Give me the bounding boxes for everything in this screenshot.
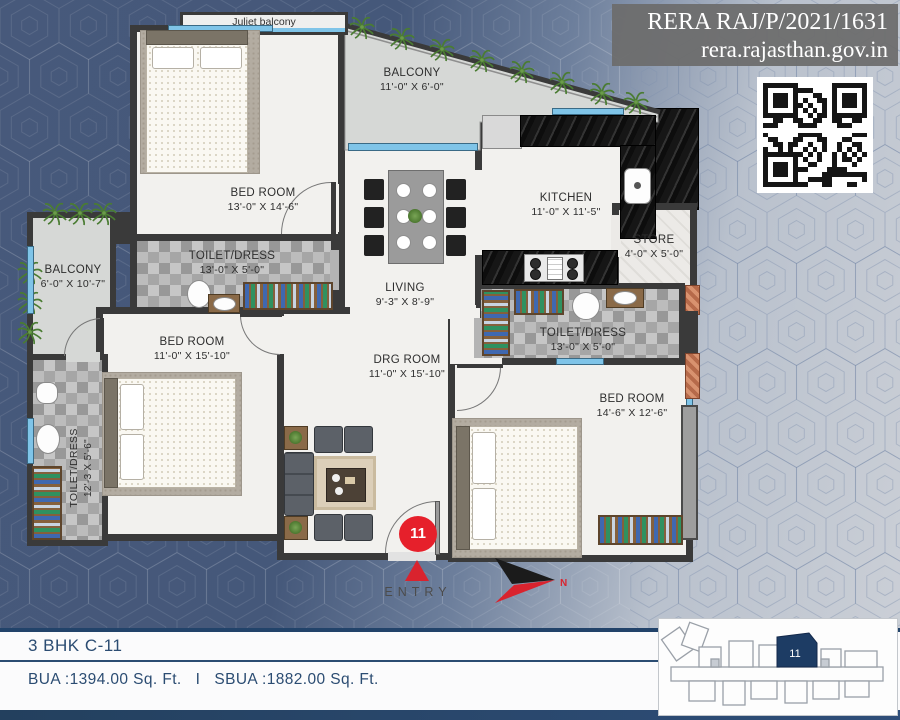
side-table — [284, 516, 308, 540]
key-plan-unit-number: 11 — [789, 648, 800, 660]
toilet-icon — [572, 292, 600, 320]
door-leaf — [240, 313, 282, 317]
area-separator: I — [196, 671, 201, 688]
window — [556, 358, 604, 365]
room-label-kitchen: KITCHEN11'-0" X 11'-5" — [491, 191, 641, 220]
wardrobe-icon — [514, 289, 564, 315]
kitchen-counter — [520, 115, 656, 147]
pillow — [120, 384, 144, 430]
table-plant — [408, 209, 422, 223]
toilet-icon — [36, 382, 58, 404]
pillow — [120, 434, 144, 480]
unit-title: 3 BHK C-11 — [28, 636, 122, 656]
headboard — [146, 30, 248, 45]
side-table — [284, 426, 308, 450]
wardrobe-icon — [243, 282, 333, 310]
entry-label: ENTRY — [358, 585, 478, 599]
wardrobe-icon — [32, 466, 62, 540]
room-label-toilet-right: TOILET/DRESS13'-0" X 5'-0" — [508, 326, 658, 355]
fridge-icon — [482, 115, 522, 149]
sofa-chair — [344, 514, 373, 541]
plate — [422, 235, 437, 250]
window — [348, 143, 478, 151]
qr-code — [757, 77, 873, 193]
room-label-toilet-left: TOILET/DRESS12'-3 X 5'-6" — [68, 413, 96, 523]
key-plan-drawing: 11 — [659, 619, 897, 715]
sofa-icon — [284, 452, 314, 516]
unit-number-badge: 11 — [399, 516, 437, 552]
footer-divider — [0, 660, 660, 662]
pillow — [472, 488, 496, 540]
headboard — [456, 426, 470, 550]
chair — [364, 179, 384, 200]
plate — [396, 183, 411, 198]
wardrobe-icon — [598, 515, 683, 545]
sofa-chair — [344, 426, 373, 453]
vanity — [208, 294, 240, 313]
bua-value: BUA :1394.00 Sq. Ft. — [28, 671, 182, 688]
area-summary: BUA :1394.00 Sq. Ft.ISBUA :1882.00 Sq. F… — [28, 671, 379, 689]
room-label-balcony-left: BALCONY6'-0" X 10'-7" — [13, 263, 133, 292]
room-label-balcony-top: BALCONY11'-0" X 6'-0" — [337, 66, 487, 95]
sofa-chair — [314, 514, 343, 541]
window — [27, 418, 34, 464]
chair — [364, 235, 384, 256]
coffee-table-icon — [326, 468, 366, 502]
window — [552, 108, 624, 115]
pillow — [472, 432, 496, 484]
ledge-panel — [681, 405, 698, 540]
entry-arrow-icon — [405, 560, 429, 581]
room-label-drg: DRG ROOM11'-0" X 15'-10" — [332, 353, 482, 382]
room-label-store: STORE4'-0" X 5'-0" — [594, 233, 714, 262]
rera-website: rera.rajasthan.gov.in — [612, 36, 888, 63]
wall-segment — [680, 311, 698, 355]
chair — [446, 207, 466, 228]
pillow — [200, 47, 242, 69]
rera-registration-box: RERA RAJ/P/2021/1631 rera.rajasthan.gov.… — [612, 4, 898, 66]
room-label-living: LIVING9'-3" X 8'-9" — [330, 281, 480, 310]
plate — [396, 235, 411, 250]
room-label-toilet-top: TOILET/DRESS13'-0" X 5'-0" — [157, 249, 307, 278]
sofa-chair — [314, 426, 343, 453]
key-plan: 11 — [658, 618, 898, 716]
compass-icon: N — [495, 558, 567, 603]
headboard — [104, 378, 118, 488]
pillow — [152, 47, 194, 69]
rera-number: RERA RAJ/P/2021/1631 — [612, 8, 888, 36]
plate — [422, 183, 437, 198]
plate — [422, 209, 437, 224]
chair — [446, 235, 466, 256]
chair — [446, 179, 466, 200]
room-label-bedroom-2: BED ROOM11'-0" X 15'-10" — [117, 335, 267, 364]
stove-icon — [524, 254, 584, 282]
sbua-value: SBUA :1882.00 Sq. Ft. — [214, 671, 378, 688]
svg-text:N: N — [560, 578, 567, 589]
floorplan-page: N Juliet balcony — [0, 0, 900, 720]
chair — [364, 207, 384, 228]
wardrobe-icon — [482, 290, 510, 356]
sink-icon — [36, 424, 60, 454]
room-label-bedroom-3: BED ROOM14'-6" X 12'-6" — [557, 392, 707, 421]
door-leaf — [100, 318, 104, 358]
vanity — [606, 288, 644, 308]
room-label-bedroom-1: BED ROOM13'-0" X 14'-6" — [188, 186, 338, 215]
